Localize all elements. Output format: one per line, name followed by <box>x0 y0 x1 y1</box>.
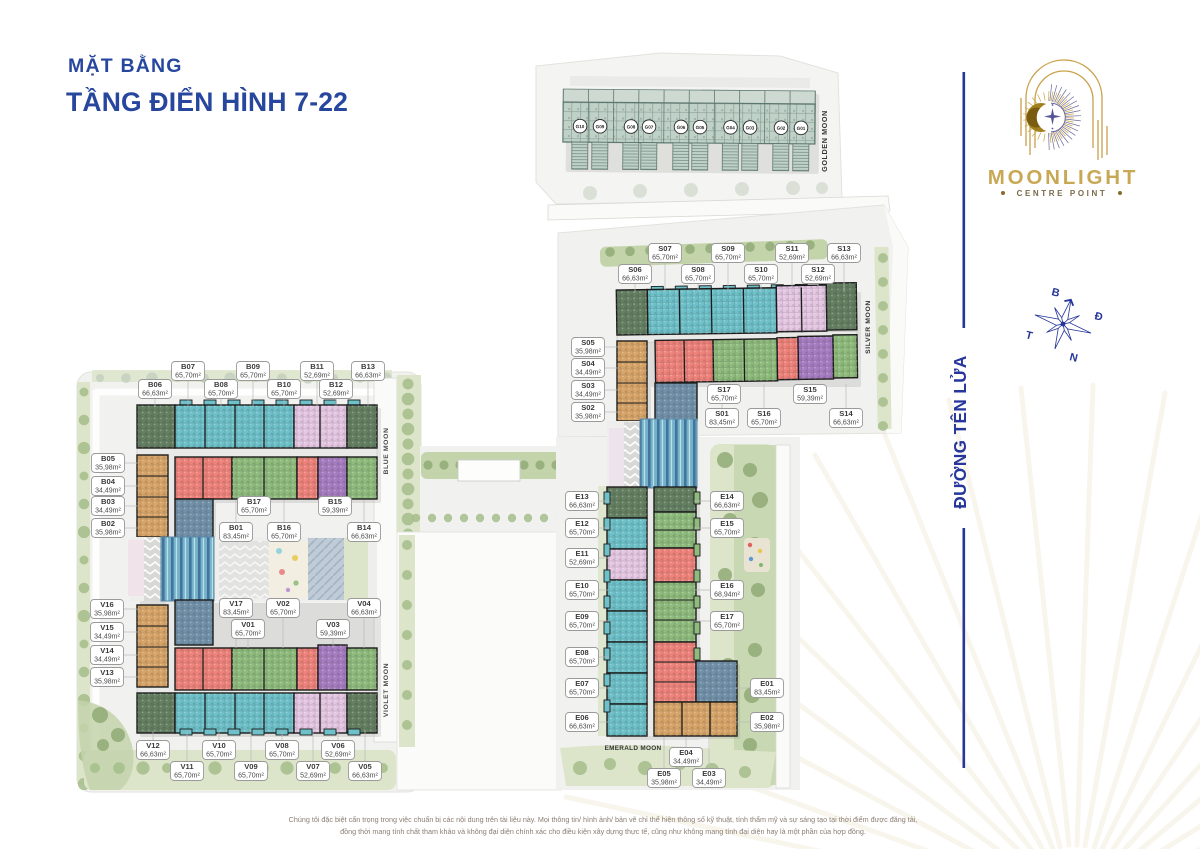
svg-text:E13: E13 <box>575 492 589 501</box>
svg-text:B05: B05 <box>101 454 116 463</box>
svg-text:B02: B02 <box>101 519 115 528</box>
svg-text:S08: S08 <box>691 265 705 274</box>
svg-text:V05: V05 <box>358 762 372 771</box>
svg-text:đồng thời mang tính chất tham: đồng thời mang tính chất tham khảo và kh… <box>340 827 866 836</box>
svg-text:S12: S12 <box>811 265 825 274</box>
svg-text:TẦNG ĐIỂN HÌNH 7-22: TẦNG ĐIỂN HÌNH 7-22 <box>66 87 348 117</box>
svg-text:S06: S06 <box>628 265 642 274</box>
svg-text:66,63m²: 66,63m² <box>351 609 377 616</box>
svg-text:68,94m²: 68,94m² <box>714 591 740 598</box>
svg-text:65,70m²: 65,70m² <box>711 395 737 402</box>
svg-text:83,45m²: 83,45m² <box>223 609 249 616</box>
svg-text:S05: S05 <box>581 338 595 347</box>
svg-text:G07: G07 <box>645 125 654 130</box>
svg-text:CENTRE POINT: CENTRE POINT <box>1017 189 1108 198</box>
svg-text:G09: G09 <box>596 124 605 129</box>
svg-text:35,98m²: 35,98m² <box>575 348 601 355</box>
svg-text:66,63m²: 66,63m² <box>831 254 857 261</box>
svg-text:V11: V11 <box>180 762 194 771</box>
svg-text:65,70m²: 65,70m² <box>206 751 232 758</box>
svg-text:G10: G10 <box>576 124 585 129</box>
svg-text:B13: B13 <box>361 362 375 371</box>
svg-text:52,69m²: 52,69m² <box>325 751 351 758</box>
svg-text:B12: B12 <box>329 380 343 389</box>
svg-text:S14: S14 <box>839 409 853 418</box>
svg-text:V12: V12 <box>146 741 160 750</box>
svg-text:66,63m²: 66,63m² <box>142 390 168 397</box>
svg-text:V15: V15 <box>100 623 114 632</box>
svg-text:B04: B04 <box>101 477 116 486</box>
svg-text:E10: E10 <box>575 581 589 590</box>
svg-text:EMERALD MOON: EMERALD MOON <box>605 745 662 752</box>
svg-text:B06: B06 <box>148 380 162 389</box>
svg-text:66,63m²: 66,63m² <box>569 723 595 730</box>
svg-text:65,70m²: 65,70m² <box>569 689 595 696</box>
svg-text:65,70m²: 65,70m² <box>270 609 296 616</box>
svg-text:G02: G02 <box>777 126 786 131</box>
svg-text:52,69m²: 52,69m² <box>805 275 831 282</box>
svg-text:66,63m²: 66,63m² <box>351 533 377 540</box>
svg-text:66,63m²: 66,63m² <box>140 751 166 758</box>
svg-text:G04: G04 <box>726 125 735 130</box>
svg-text:B03: B03 <box>101 497 115 506</box>
svg-text:66,63m²: 66,63m² <box>569 502 595 509</box>
svg-text:35,98m²: 35,98m² <box>94 610 120 617</box>
svg-text:65,70m²: 65,70m² <box>174 772 200 779</box>
svg-text:34,49m²: 34,49m² <box>95 507 121 514</box>
svg-text:S11: S11 <box>785 244 799 253</box>
svg-text:65,70m²: 65,70m² <box>715 254 741 261</box>
svg-text:65,70m²: 65,70m² <box>685 275 711 282</box>
svg-text:G03: G03 <box>746 125 755 130</box>
svg-text:V14: V14 <box>100 646 114 655</box>
svg-text:S13: S13 <box>837 244 851 253</box>
svg-text:V09: V09 <box>244 762 258 771</box>
svg-text:66,63m²: 66,63m² <box>355 372 381 379</box>
svg-text:65,70m²: 65,70m² <box>751 419 777 426</box>
svg-text:83,45m²: 83,45m² <box>709 419 735 426</box>
svg-text:E02: E02 <box>760 713 774 722</box>
svg-text:52,69m²: 52,69m² <box>300 772 326 779</box>
svg-text:65,70m²: 65,70m² <box>241 507 267 514</box>
svg-text:E15: E15 <box>720 519 734 528</box>
svg-text:S01: S01 <box>715 409 729 418</box>
svg-text:83,45m²: 83,45m² <box>754 689 780 696</box>
svg-text:V03: V03 <box>326 620 340 629</box>
svg-text:S16: S16 <box>757 409 771 418</box>
svg-text:35,98m²: 35,98m² <box>95 529 121 536</box>
svg-text:V10: V10 <box>212 741 226 750</box>
svg-text:E11: E11 <box>575 549 589 558</box>
svg-text:E03: E03 <box>702 769 716 778</box>
svg-text:34,49m²: 34,49m² <box>673 758 699 765</box>
svg-text:65,70m²: 65,70m² <box>240 372 266 379</box>
svg-text:VIOLET MOON: VIOLET MOON <box>383 663 390 717</box>
svg-text:65,70m²: 65,70m² <box>175 372 201 379</box>
svg-text:B09: B09 <box>246 362 260 371</box>
svg-text:G06: G06 <box>677 125 686 130</box>
svg-text:E09: E09 <box>575 612 589 621</box>
svg-text:59,39m²: 59,39m² <box>322 507 348 514</box>
svg-text:G01: G01 <box>797 126 806 131</box>
svg-text:S03: S03 <box>581 381 595 390</box>
svg-text:V13: V13 <box>100 668 114 677</box>
svg-text:MẶT BẰNG: MẶT BẰNG <box>68 53 183 77</box>
svg-text:35,98m²: 35,98m² <box>575 413 601 420</box>
svg-text:E08: E08 <box>575 648 589 657</box>
svg-text:65,70m²: 65,70m² <box>271 533 297 540</box>
svg-text:34,49m²: 34,49m² <box>575 391 601 398</box>
svg-text:65,70m²: 65,70m² <box>269 751 295 758</box>
svg-text:66,63m²: 66,63m² <box>714 502 740 509</box>
svg-text:S17: S17 <box>717 385 731 394</box>
svg-text:E14: E14 <box>720 492 734 501</box>
svg-text:V01: V01 <box>241 620 255 629</box>
svg-text:E16: E16 <box>720 581 734 590</box>
svg-text:B10: B10 <box>277 380 291 389</box>
svg-text:65,70m²: 65,70m² <box>569 591 595 598</box>
svg-text:83,45m²: 83,45m² <box>223 533 249 540</box>
svg-text:E04: E04 <box>679 748 693 757</box>
svg-text:66,63m²: 66,63m² <box>352 772 378 779</box>
svg-text:V16: V16 <box>100 600 114 609</box>
svg-text:35,98m²: 35,98m² <box>94 678 120 685</box>
svg-text:V04: V04 <box>357 599 371 608</box>
svg-text:SILVER MOON: SILVER MOON <box>865 300 872 354</box>
svg-text:G08: G08 <box>627 125 636 130</box>
svg-text:52,69m²: 52,69m² <box>304 372 330 379</box>
svg-text:V07: V07 <box>306 762 320 771</box>
svg-text:66,63m²: 66,63m² <box>833 419 859 426</box>
svg-text:52,69m²: 52,69m² <box>779 254 805 261</box>
svg-text:59,39m²: 59,39m² <box>320 630 346 637</box>
svg-text:65,70m²: 65,70m² <box>652 254 678 261</box>
svg-text:V17: V17 <box>229 599 243 608</box>
svg-text:S02: S02 <box>581 403 595 412</box>
svg-text:65,70m²: 65,70m² <box>238 772 264 779</box>
svg-text:35,98m²: 35,98m² <box>95 464 121 471</box>
svg-text:S10: S10 <box>754 265 768 274</box>
svg-text:Chúng tôi đặc biệt cẩn trọng t: Chúng tôi đặc biệt cẩn trọng trong việc … <box>289 815 918 824</box>
svg-text:E06: E06 <box>575 713 589 722</box>
svg-text:52,69m²: 52,69m² <box>569 559 595 566</box>
svg-text:V06: V06 <box>331 741 345 750</box>
svg-text:65,70m²: 65,70m² <box>271 390 297 397</box>
svg-text:65,70m²: 65,70m² <box>569 622 595 629</box>
svg-text:S04: S04 <box>581 359 595 368</box>
svg-text:S15: S15 <box>803 385 817 394</box>
svg-text:34,49m²: 34,49m² <box>575 369 601 376</box>
svg-text:B08: B08 <box>214 380 228 389</box>
svg-text:S09: S09 <box>721 244 735 253</box>
svg-text:65,70m²: 65,70m² <box>235 630 261 637</box>
svg-text:34,49m²: 34,49m² <box>94 656 120 663</box>
svg-text:E17: E17 <box>720 612 734 621</box>
svg-text:B11: B11 <box>310 362 324 371</box>
svg-text:S07: S07 <box>658 244 672 253</box>
svg-text:E05: E05 <box>657 769 671 778</box>
svg-text:34,49m²: 34,49m² <box>95 487 121 494</box>
svg-text:B01: B01 <box>229 523 244 532</box>
svg-text:E07: E07 <box>575 679 589 688</box>
svg-text:G05: G05 <box>696 125 705 130</box>
svg-text:52,69m²: 52,69m² <box>323 390 349 397</box>
svg-text:59,39m²: 59,39m² <box>797 395 823 402</box>
svg-text:E12: E12 <box>575 519 589 528</box>
svg-text:V08: V08 <box>275 741 289 750</box>
svg-text:B17: B17 <box>247 497 261 506</box>
svg-text:65,70m²: 65,70m² <box>208 390 234 397</box>
svg-text:V02: V02 <box>276 599 290 608</box>
svg-text:B14: B14 <box>357 523 372 532</box>
svg-text:B07: B07 <box>181 362 195 371</box>
svg-text:65,70m²: 65,70m² <box>569 529 595 536</box>
svg-text:GOLDEN MOON: GOLDEN MOON <box>820 110 829 172</box>
svg-text:65,70m²: 65,70m² <box>714 529 740 536</box>
svg-text:BLUE MOON: BLUE MOON <box>383 428 390 475</box>
svg-text:65,70m²: 65,70m² <box>714 622 740 629</box>
svg-text:34,49m²: 34,49m² <box>94 633 120 640</box>
svg-text:B16: B16 <box>277 523 291 532</box>
svg-text:ĐƯỜNG TÊN LỬA: ĐƯỜNG TÊN LỬA <box>950 355 970 508</box>
svg-text:65,70m²: 65,70m² <box>569 658 595 665</box>
svg-text:35,98m²: 35,98m² <box>651 779 677 786</box>
svg-text:MOONLIGHT: MOONLIGHT <box>988 166 1138 189</box>
svg-text:34,49m²: 34,49m² <box>696 779 722 786</box>
svg-text:B15: B15 <box>328 497 343 506</box>
svg-text:E01: E01 <box>760 679 774 688</box>
svg-text:35,98m²: 35,98m² <box>754 723 780 730</box>
svg-text:65,70m²: 65,70m² <box>748 275 774 282</box>
svg-text:66,63m²: 66,63m² <box>622 275 648 282</box>
